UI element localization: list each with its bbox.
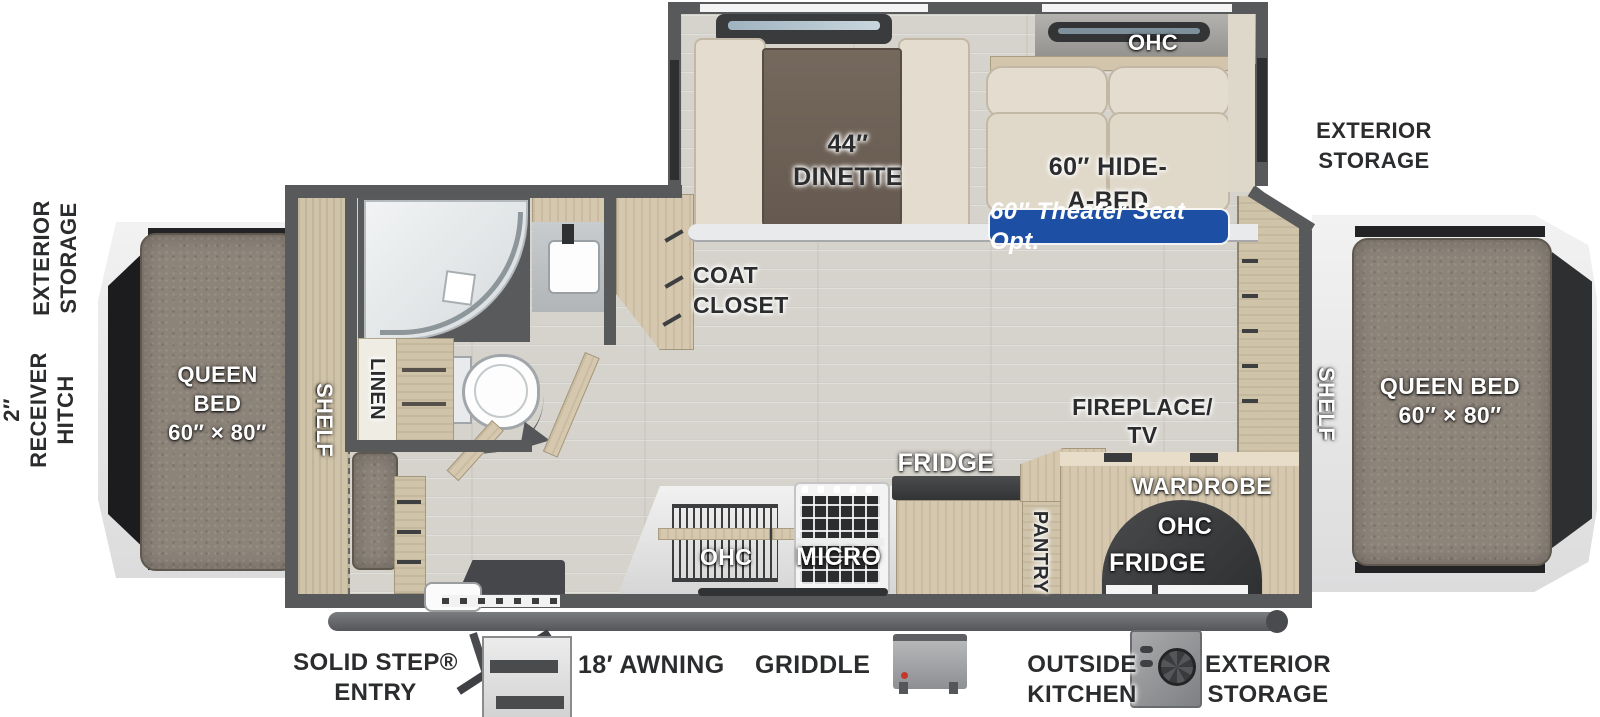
slide-top-window-cutout-left (700, 4, 928, 12)
nightstand-slot-1 (397, 500, 421, 504)
rear-cabinet-slot-4 (1242, 329, 1258, 333)
rear-exterior-storage-label: EXTERIOR STORAGE (1300, 116, 1448, 176)
rear-cabinet-slot-5 (1242, 364, 1258, 368)
outside-kitchen-burner (1158, 648, 1196, 686)
rear-bed-rail-top (1355, 226, 1545, 237)
cooktop-knobs (802, 486, 878, 493)
wardrobe-top-edge (1060, 452, 1299, 466)
kitchen-rail-left (658, 528, 770, 540)
entry-steps (452, 630, 577, 717)
kitchen-ohc-label: OHC (700, 543, 752, 571)
front-shelf-label: SHELF (311, 360, 337, 480)
griddle-valve (901, 672, 908, 679)
griddle-leg-right (949, 682, 958, 694)
step-tread-1 (490, 660, 558, 673)
wardrobe-ohc-label: OHC (1130, 512, 1240, 541)
bathroom-left-wall (345, 192, 357, 452)
nightstand-slot-3 (397, 560, 421, 564)
theater-seat-option-badge: 60″ Theater Seat Opt. (990, 210, 1228, 243)
slide-right-window (1268, 58, 1276, 162)
rear-bed-canvas (1552, 252, 1592, 548)
utensil-bar (698, 588, 888, 596)
fridge-cabinet (896, 500, 1024, 596)
tv-unit-mark-right (1190, 453, 1218, 462)
awning-label: 18′ AWNING (578, 650, 725, 681)
slide-right-window-glass (1257, 58, 1267, 162)
wardrobe-fridge-shelf-left (1106, 585, 1152, 594)
vanity-sink (548, 240, 600, 294)
body-right-wall (1299, 220, 1312, 608)
entry-threshold (442, 595, 560, 607)
slide-left-window-glass (670, 60, 679, 180)
griddle-unit (893, 634, 967, 689)
dinette-label: 44″ DINETTE (768, 128, 928, 194)
nightstand-slot-2 (397, 530, 421, 534)
body-left-wall (285, 185, 298, 608)
front-bed-label: QUEEN BED 60″ × 80″ (140, 360, 295, 447)
rear-cabinet-slot-3 (1242, 294, 1258, 298)
sofa-back-left (986, 66, 1108, 118)
bottom-exterior-storage-label: EXTERIOR STORAGE (1192, 650, 1344, 710)
vanity-faucet (562, 224, 574, 244)
coat-closet-label: COAT CLOSET (693, 260, 823, 320)
linen-label: LINEN (365, 337, 389, 441)
dinette-window-glass (728, 21, 880, 30)
griddle-leg-left (899, 682, 908, 694)
wardrobe-fridge-shelf-right (1158, 585, 1248, 594)
tv-unit-mark-left (1104, 453, 1132, 462)
bathroom-right-wall (604, 192, 616, 345)
fridge-counter-top (892, 476, 1026, 500)
slide-top-window-cutout-right (1042, 4, 1232, 12)
rear-cabinet-slot-2 (1242, 259, 1258, 263)
pantry-label: PANTRY (1028, 497, 1052, 607)
shower-seat (442, 270, 476, 306)
linen-drawer-slot-2 (402, 402, 446, 406)
fireplace-tv-label: FIREPLACE/ TV (1050, 393, 1235, 449)
wardrobe-label: WARDROBE (1112, 472, 1292, 500)
rear-cabinet-slot-6 (1242, 399, 1258, 403)
floorplan-diagram: EXTERIOR STORAGE 2″ RECEIVER HITCH QUEEN… (0, 0, 1600, 717)
front-bed-interior-edge (352, 452, 398, 570)
awning-roller-cap (1266, 610, 1288, 633)
rear-bed-label: QUEEN BED 60″ × 80″ (1355, 372, 1545, 430)
fridge-label: FRIDGE (896, 448, 996, 479)
ohc-label: OHC (1128, 30, 1178, 57)
nightstand (394, 476, 426, 594)
slide-left-window (660, 55, 668, 185)
linen-cabinet-drawers (396, 338, 454, 442)
front-exterior-storage-label: EXTERIOR STORAGE (28, 183, 86, 333)
outside-kitchen-label: OUTSIDE KITCHEN (1012, 650, 1152, 710)
awning-rail (328, 612, 1284, 631)
micro-label: MICRO (796, 542, 881, 573)
wardrobe-fridge-label: FRIDGE (1100, 548, 1215, 579)
step-tread-2 (496, 696, 564, 709)
receiver-hitch-label: 2″ RECEIVER HITCH (0, 335, 82, 485)
slide-end-panel (1228, 14, 1255, 192)
sofa-back-right (1108, 66, 1230, 118)
griddle-label: GRIDDLE (755, 650, 870, 681)
rear-shelf-label: SHELF (1313, 344, 1339, 464)
solid-step-entry-label: SOLID STEP® ENTRY (283, 648, 468, 708)
vanity-shelf (532, 196, 606, 224)
dinette-bench-left (694, 38, 766, 232)
bathroom-bottom-wall (345, 440, 532, 452)
linen-drawer-slot-1 (402, 368, 446, 372)
